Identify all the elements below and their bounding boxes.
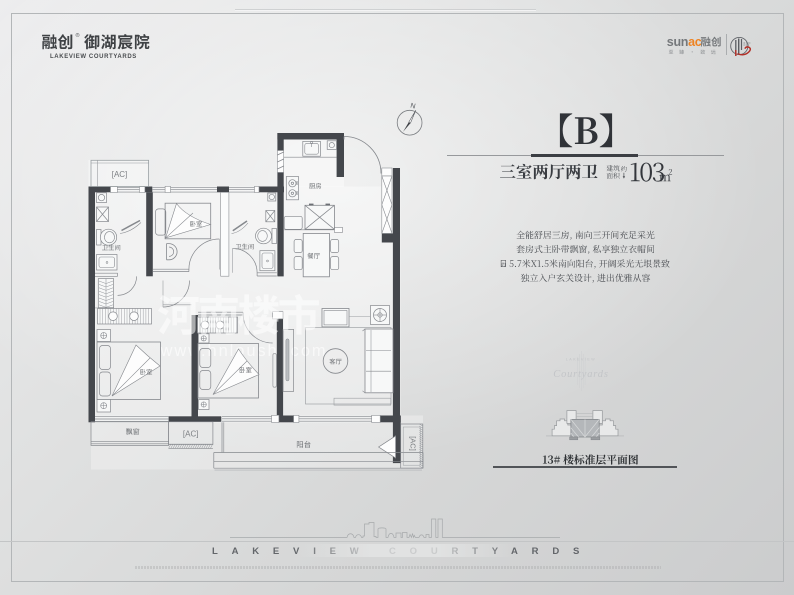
svg-text:[AC]: [AC]	[112, 170, 128, 179]
svg-text:N: N	[410, 103, 417, 111]
svg-text:[AC]: [AC]	[409, 436, 418, 451]
svg-text:[AC]: [AC]	[183, 429, 199, 438]
svg-text:LAKEVIEW: LAKEVIEW	[566, 358, 596, 362]
svg-text:Courtyards: Courtyards	[553, 369, 608, 380]
svg-text:®: ®	[76, 32, 80, 39]
